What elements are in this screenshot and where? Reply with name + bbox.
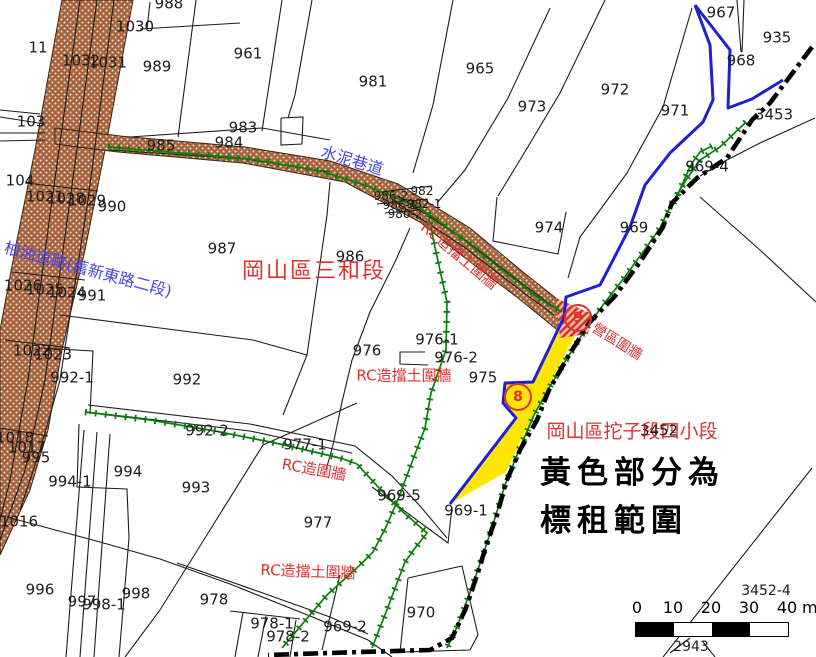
- parcel-label-973: 973: [518, 100, 547, 115]
- parcel-label-961: 961: [234, 47, 263, 62]
- parcel-label-1023: 1023: [34, 348, 72, 363]
- parcel-label-978-2: 978-2: [266, 630, 310, 645]
- parcel-label-104: 104: [6, 174, 35, 189]
- scale-tick-10: 10: [663, 598, 683, 617]
- parcel-label-981: 981: [359, 75, 388, 90]
- parcel-label-969-5: 969-5: [377, 489, 421, 504]
- parcel-label-969: 969: [620, 221, 649, 236]
- scale-tick-20: 20: [701, 598, 721, 617]
- parcel-label-984: 984: [215, 136, 244, 151]
- parcel-label-994-1: 994-1: [48, 475, 92, 490]
- parcel-label-991: 991: [78, 289, 107, 304]
- parcel-label-994: 994: [114, 465, 143, 480]
- parcel-label-971: 971: [661, 104, 690, 119]
- scale-bar-segments: [635, 622, 789, 637]
- parcel-label-974: 974: [535, 221, 564, 236]
- district-label-tuozi: 岡山區拕子段四小段: [546, 423, 717, 442]
- parcel-label-982: 982: [411, 185, 434, 197]
- parcel-label-1031: 1031: [89, 56, 127, 71]
- parcel-label-976-2: 976-2: [434, 351, 478, 366]
- site-marker-9: 9: [564, 304, 592, 332]
- parcel-label-990: 990: [98, 200, 127, 215]
- scale-tick-30: 30: [739, 598, 759, 617]
- parcel-label-998: 998: [122, 587, 151, 602]
- parcel-label-977: 977: [304, 516, 333, 531]
- parcel-label-992-1: 992-1: [50, 371, 94, 386]
- parcel-label-987: 987: [208, 242, 237, 257]
- parcel-label-975: 975: [469, 371, 498, 386]
- parcel-label-992: 992: [173, 373, 202, 388]
- parcel-label-972: 972: [601, 83, 630, 98]
- parcel-label-989: 989: [143, 60, 172, 75]
- parcel-label-980-2: 980-2: [388, 208, 423, 220]
- parcel-label-969-4: 969-4: [685, 160, 729, 175]
- parcel-label-969-2: 969-2: [323, 620, 367, 635]
- parcel-label-977-1: 977-1: [283, 438, 327, 453]
- scale-tick-40: 40: [777, 598, 797, 617]
- parcel-label-988: 988: [155, 0, 184, 12]
- parcel-label-967: 967: [707, 6, 736, 21]
- wall-label-rc-retaining-bottom: RC造擋土圍牆: [260, 563, 356, 581]
- parcel-label-103: 103: [17, 115, 46, 130]
- parcel-label-3453: 3453: [755, 108, 793, 123]
- parcel-label-1016: 1016: [0, 515, 38, 530]
- legend-note-line1: 黃色部分為: [540, 458, 725, 489]
- parcel-label-995: 995: [22, 451, 51, 466]
- scale-bar: 0 10 20 30 40 m: [620, 598, 816, 643]
- parcel-label-993: 993: [182, 481, 211, 496]
- scale-unit: m: [802, 598, 816, 617]
- parcel-label-985: 985: [147, 139, 176, 154]
- parcel-label-976: 976: [353, 344, 382, 359]
- parcel-label-986: 986: [336, 250, 365, 265]
- parcel-label-970: 970: [407, 606, 436, 621]
- parcel-label-965: 965: [466, 62, 495, 77]
- district-label-sanhe: 岡山區三和段: [242, 261, 386, 283]
- wall-label-rc-retaining-mid: RC造擋土圍牆: [356, 369, 451, 384]
- parcel-label-935: 935: [763, 31, 792, 46]
- parcel-label-968: 968: [727, 54, 756, 69]
- parcel-label-1030: 1030: [116, 20, 154, 35]
- parcel-label-3452-4: 3452-4: [741, 584, 791, 598]
- parcel-label-976-1: 976-1: [415, 333, 459, 348]
- scale-tick-0: 0: [632, 598, 642, 617]
- site-marker-8: 8: [504, 383, 532, 411]
- parcel-label-3452: 3452: [640, 424, 678, 439]
- parcel-label-978: 978: [200, 593, 229, 608]
- parcel-label-992-2: 992-2: [185, 424, 229, 439]
- parcel-label-996: 996: [26, 583, 55, 598]
- legend-note-line2: 標租範圍: [540, 506, 688, 537]
- cadastral-map: 岡山區三和段 岡山區拕子段四小段 水泥巷道 柏油道路(舊新東路二段) RC造擋土…: [0, 0, 816, 657]
- map-canvas: [0, 0, 816, 657]
- parcel-label-969-1: 969-1: [444, 504, 488, 519]
- cement-alley-area: [55, 128, 576, 333]
- parcel-label-11: 11: [28, 41, 47, 56]
- parcel-label-998-1: 998-1: [82, 598, 126, 613]
